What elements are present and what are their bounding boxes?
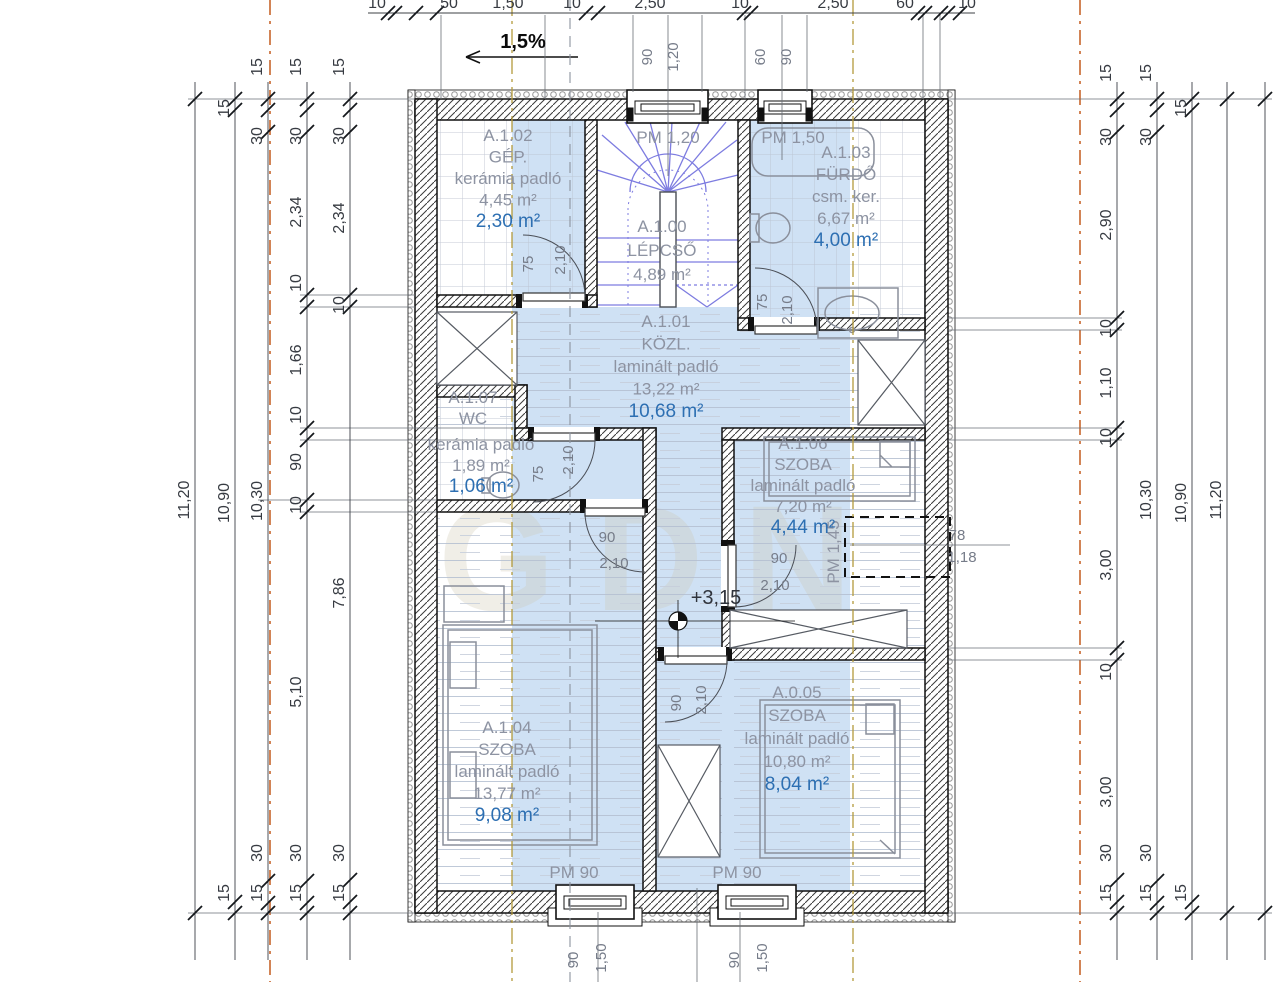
room-label: A.1.01 [641,312,690,331]
annotation-label: PM 1,20 [636,128,699,147]
dim-label: 10 [1098,319,1115,337]
dim-label: 15 [249,884,266,902]
dim-label: 30 [331,844,348,862]
annotation-label: 90 [726,952,743,969]
dim-label: 3,00 [1098,776,1115,807]
annotation-label: 1,50 [754,943,771,972]
room-label: 4,89 m² [633,265,691,284]
room-label: 10,80 m² [763,752,830,771]
dim-label: 2,90 [1098,209,1115,240]
dim-label: 1,50 [492,0,523,12]
annotation-label: 60 [752,49,769,66]
annotation-label: 90 [639,49,656,66]
room-label: 4,44 m² [771,517,835,538]
room-label: 7,20 m² [774,497,832,516]
dim-label: 15 [1098,64,1115,82]
dim-label: 30 [1138,844,1155,862]
dim-label: 50 [440,0,458,12]
floorplan-drawing: GDN [0,0,1280,982]
room-label: 1,06 m² [449,476,513,497]
dim-label: 1,10 [1098,367,1115,398]
dim-label: 15 [288,58,305,76]
annotation-label: 2,10 [779,295,796,324]
dim-label: 3,00 [1098,549,1115,580]
room-label: 13,22 m² [632,380,699,399]
room-label: FÜRDŐ [816,165,876,184]
dim-label: 5,10 [288,676,305,707]
room-label: kerámia padló [428,435,535,454]
annotation-label: 1,50 [593,943,610,972]
dim-label: 30 [249,127,266,145]
window-top-1 [627,90,708,123]
dim-label: 2,50 [817,0,848,12]
dim-label: 2,34 [288,196,305,227]
dim-label: 15 [1098,884,1115,902]
dim-label: 10 [288,406,305,424]
dim-label: 7,86 [331,577,348,608]
room-label: A.1.06 [778,434,827,453]
room-label: csm. ker. [812,187,880,206]
dim-label: 2,34 [331,202,348,233]
room-label: laminált padló [751,476,856,495]
room-label: 9,08 m² [475,805,539,826]
annotation-label: 90 [565,952,582,969]
room-label: A.1.07 [448,388,497,407]
annotation-label: PM 90 [712,863,761,882]
room-label: kerámia padló [455,169,562,188]
dim-label: 10,30 [249,481,266,521]
annotation-label: PM 1,50 [761,128,824,147]
dim-label: 30 [1098,844,1115,862]
dim-label: 30 [1138,128,1155,146]
room-label: SZOBA [478,740,536,759]
room-label: A.1.00 [637,217,686,236]
annotation-label: 90 [599,529,616,546]
wardrobe-right-top [858,340,925,425]
room-label: 1,89 m² [452,456,510,475]
room-label: A.1.04 [482,718,531,737]
dim-label: 10,90 [216,483,233,523]
dim-label: 15 [1173,884,1190,902]
room-label: laminált padló [614,357,719,376]
dim-label: 2,50 [634,0,665,12]
annotation-label: 78 [949,527,966,544]
dim-label: 15 [216,884,233,902]
shaft-box-left [437,312,517,385]
dim-label: 30 [288,127,305,145]
dim-label: 15 [216,99,233,117]
annotation-label: 2,10 [599,555,628,572]
room-label: A.0.05 [772,683,821,702]
dim-label: 10 [288,274,305,292]
room-label: laminált padló [745,729,850,748]
dim-label: 90 [288,453,305,471]
dim-label: 10 [331,296,348,314]
room-label: 13,77 m² [473,784,540,803]
dim-label: 60 [896,0,914,12]
dim-label: 11,20 [1208,480,1225,519]
annotation-label: 90 [771,550,788,567]
room-label: laminált padló [455,762,560,781]
room-label: WC [459,409,487,428]
dim-label: 10 [1098,663,1115,681]
room-label: SZOBA [768,706,826,725]
annotation-label: 2,10 [552,245,569,274]
window-top-2 [758,90,812,123]
annotation-label: 2,10 [560,445,577,474]
dim-label: 15 [1138,884,1155,902]
dim-label: 30 [249,844,266,862]
room-label: LÉPCSŐ [628,241,697,260]
annotation-label: 90 [778,49,795,66]
dim-label: 15 [1173,99,1190,117]
dim-label: 15 [1138,64,1155,82]
annotation-label: PM 90 [549,863,598,882]
annotation-label: 1,5% [500,31,546,53]
annotation-label: 1,18 [947,549,976,566]
annotation-label: 1,20 [665,42,682,71]
room-label: A.1.03 [821,143,870,162]
dim-label: 11,20 [176,480,193,519]
window-bottom-1 [548,885,642,926]
annotation-label: 75 [754,294,771,311]
dim-label: 15 [288,884,305,902]
annotation-label: 75 [530,466,547,483]
dim-label: 15 [249,58,266,76]
room-label: SZOBA [774,455,832,474]
dim-label: 1,66 [288,344,305,375]
dim-label: 10 [1098,428,1115,446]
room-label: KÖZL. [641,335,690,354]
dim-label: 30 [288,844,305,862]
annotation-label: 2,10 [760,577,789,594]
room-label: 6,67 m² [817,209,875,228]
room-label: A.1.02 [483,126,532,145]
annotation-label: 75 [520,256,537,273]
wardrobe-corridor [658,745,720,857]
window-bottom-2 [710,885,804,926]
dim-label: 10 [288,496,305,514]
dim-label: 10,30 [1138,480,1155,520]
dim-label: 10 [731,0,749,12]
dim-label: 10 [563,0,581,12]
dim-label: 10 [368,0,386,12]
annotation-label: 90 [668,695,685,712]
room-label: 4,45 m² [479,191,537,210]
room-label: 4,00 m² [814,230,878,251]
wardrobe-a106 [730,610,907,648]
dim-label: 30 [1098,128,1115,146]
room-label: GÉP. [489,148,527,167]
dim-label: 15 [331,58,348,76]
annotation-label: 2,10 [693,685,710,714]
dim-label: 15 [331,884,348,902]
floorplan-canvas: GDN [0,0,1280,982]
room-label: 2,30 m² [476,211,540,232]
dim-label: 10 [958,0,976,12]
dim-label: 30 [331,127,348,145]
dim-label: 10,90 [1173,483,1190,523]
room-label: 10,68 m² [629,401,704,422]
room-label: 8,04 m² [765,774,829,795]
annotation-label: +3,15 [691,587,742,609]
